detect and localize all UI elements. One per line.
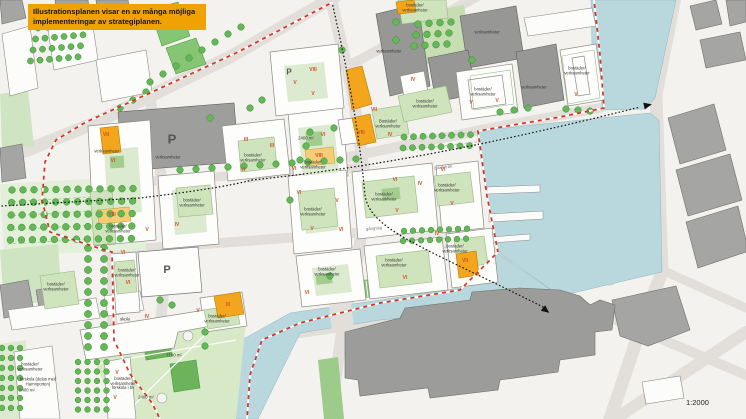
tree-icon — [8, 212, 15, 219]
tree-icon — [30, 211, 37, 218]
tree-icon — [439, 133, 445, 139]
tree-icon — [410, 228, 416, 234]
tree-icon — [17, 355, 23, 361]
tree-icon — [104, 397, 110, 403]
tree-icon — [186, 55, 193, 62]
tree-icon — [119, 185, 126, 192]
tree-icon — [96, 211, 103, 218]
tree-icon — [177, 167, 184, 174]
plan-note-callout: Illustrationsplanen visar en av många mö… — [28, 4, 206, 30]
tree-icon — [73, 223, 80, 230]
tree-icon — [56, 55, 62, 61]
tree-icon — [401, 228, 407, 234]
tree-icon — [241, 163, 248, 170]
tree-icon — [106, 235, 113, 242]
tree-icon — [400, 145, 406, 151]
tree-icon — [0, 395, 5, 401]
tree-icon — [75, 186, 82, 193]
tree-icon — [100, 266, 107, 273]
tree-icon — [106, 223, 113, 230]
tree-icon — [84, 255, 91, 262]
tree-icon — [94, 378, 100, 384]
tree-icon — [85, 369, 91, 375]
tree-icon — [17, 405, 23, 411]
tree-icon — [37, 57, 43, 63]
tree-icon — [75, 369, 81, 375]
tree-icon — [84, 223, 91, 230]
tree-icon — [193, 166, 200, 173]
tree-icon — [117, 223, 124, 230]
tree-icon — [8, 345, 14, 351]
tree-icon — [511, 107, 518, 114]
tree-icon — [433, 41, 440, 48]
tree-icon — [75, 54, 81, 60]
tree-icon — [95, 236, 102, 243]
tree-icon — [307, 129, 314, 136]
tree-icon — [31, 186, 38, 193]
tree-icon — [225, 31, 232, 38]
tree-icon — [100, 288, 107, 295]
tree-icon — [497, 109, 504, 116]
tree-icon — [100, 321, 107, 328]
tree-icon — [202, 329, 209, 336]
tree-icon — [447, 143, 453, 149]
tree-icon — [297, 157, 304, 164]
tree-icon — [410, 134, 416, 140]
tree-icon — [104, 369, 110, 375]
tree-icon — [160, 71, 167, 78]
tree-icon — [400, 238, 406, 244]
tree-icon — [104, 388, 110, 394]
tree-icon — [393, 37, 400, 44]
tree-icon — [353, 156, 360, 163]
tree-icon — [419, 227, 425, 233]
tree-icon — [94, 407, 100, 413]
tree-icon — [0, 385, 5, 391]
tree-icon — [448, 132, 454, 138]
tree-icon — [464, 226, 470, 232]
tree-icon — [327, 273, 334, 280]
tree-icon — [411, 43, 418, 50]
tree-icon — [84, 277, 91, 284]
tree-icon — [420, 133, 426, 139]
tree-icon — [95, 223, 102, 230]
tree-icon — [128, 223, 135, 230]
tree-icon — [94, 369, 100, 375]
tree-icon — [129, 210, 136, 217]
tree-icon — [108, 185, 115, 192]
tree-icon — [337, 157, 344, 164]
tree-icon — [331, 125, 338, 132]
tree-icon — [84, 288, 91, 295]
parking-building-south — [138, 247, 202, 297]
tree-icon — [0, 345, 5, 351]
tree-icon — [8, 355, 14, 361]
tree-icon — [29, 236, 36, 243]
tree-icon — [9, 187, 16, 194]
tree-icon — [429, 133, 435, 139]
tree-icon — [46, 56, 52, 62]
tree-icon — [8, 405, 14, 411]
tree-icon — [100, 255, 107, 262]
tree-icon — [64, 186, 71, 193]
orange-tower — [396, 0, 416, 14]
tree-icon — [17, 375, 23, 381]
tree-icon — [117, 235, 124, 242]
tree-icon — [209, 165, 216, 172]
tree-icon — [238, 24, 245, 31]
tree-icon — [0, 375, 5, 381]
tree-icon — [19, 211, 26, 218]
tree-icon — [52, 211, 59, 218]
tree-icon — [413, 32, 420, 39]
tree-icon — [65, 55, 71, 61]
tree-icon — [42, 35, 48, 41]
tree-icon — [207, 115, 214, 122]
tree-icon — [273, 161, 280, 168]
tree-icon — [86, 186, 93, 193]
tree-icon — [454, 236, 460, 242]
tree-icon — [469, 57, 476, 64]
tree-icon — [7, 224, 14, 231]
tree-icon — [415, 21, 422, 28]
tree-icon — [463, 236, 469, 242]
tree-icon — [157, 297, 164, 304]
tree-icon — [61, 33, 67, 39]
tree-icon — [75, 388, 81, 394]
tree-icon — [100, 343, 107, 350]
tree-icon — [100, 277, 107, 284]
tree-icon — [446, 226, 452, 232]
illustration-plan-map: VIIVIIIIVIIIIVIIIVVVIIVIIIIVIVVIVIIIVIVI… — [0, 0, 746, 419]
tree-icon — [51, 224, 58, 231]
tree-icon — [525, 105, 532, 112]
tree-icon — [40, 236, 47, 243]
tree-icon — [96, 198, 103, 205]
tree-icon — [17, 385, 23, 391]
tree-icon — [85, 198, 92, 205]
tree-icon — [94, 388, 100, 394]
tree-icon — [467, 132, 473, 138]
tree-icon — [393, 19, 400, 26]
tree-icon — [448, 19, 455, 26]
tree-icon — [458, 132, 464, 138]
tree-icon — [289, 160, 296, 167]
tree-icon — [303, 143, 310, 150]
tree-icon — [409, 145, 415, 151]
tree-icon — [49, 45, 55, 51]
plan-drawing — [0, 0, 746, 419]
tree-icon — [84, 332, 91, 339]
tree-icon — [75, 407, 81, 413]
tree-icon — [422, 42, 429, 49]
tree-icon — [18, 236, 25, 243]
tree-icon — [100, 299, 107, 306]
tree-icon — [100, 332, 107, 339]
tree-icon — [446, 30, 453, 37]
tree-icon — [77, 43, 83, 49]
tree-icon — [40, 224, 47, 231]
orange-tower — [214, 292, 244, 318]
tree-icon — [68, 44, 74, 50]
tree-icon — [259, 97, 266, 104]
tree-icon — [225, 164, 232, 171]
tree-icon — [75, 359, 81, 365]
tree-icon — [80, 32, 86, 38]
tree-icon — [202, 343, 209, 350]
tree-icon — [107, 210, 114, 217]
tree-icon — [0, 365, 5, 371]
tree-icon — [84, 321, 91, 328]
tree-icon — [0, 405, 5, 411]
tree-icon — [53, 186, 60, 193]
tree-icon — [8, 385, 14, 391]
tree-icon — [104, 378, 110, 384]
orange-tower — [100, 126, 121, 154]
tree-icon — [437, 19, 444, 26]
tree-icon — [62, 223, 69, 230]
tree-icon — [104, 407, 110, 413]
tree-icon — [51, 34, 57, 40]
tree-icon — [17, 345, 23, 351]
tree-icon — [85, 359, 91, 365]
tree-icon — [75, 378, 81, 384]
tree-icon — [426, 20, 433, 27]
tree-icon — [8, 375, 14, 381]
tree-icon — [84, 310, 91, 317]
tree-icon — [199, 47, 206, 54]
tree-icon — [85, 397, 91, 403]
tree-icon — [419, 144, 425, 150]
tree-icon — [100, 310, 107, 317]
tree-icon — [428, 144, 434, 150]
tree-icon — [32, 36, 38, 42]
tree-icon — [428, 227, 434, 233]
tree-icon — [74, 211, 81, 218]
tree-icon — [58, 44, 64, 50]
tree-icon — [85, 388, 91, 394]
tree-icon — [444, 41, 451, 48]
tree-icon — [20, 186, 27, 193]
tree-icon — [427, 237, 433, 243]
scale-label: 1:2000 — [686, 398, 709, 407]
tree-icon — [455, 226, 461, 232]
tree-icon — [321, 158, 328, 165]
tree-icon — [147, 79, 154, 86]
tree-icon — [8, 395, 14, 401]
tree-icon — [305, 159, 312, 166]
tree-icon — [8, 365, 14, 371]
tree-icon — [173, 63, 180, 70]
tree-icon — [85, 211, 92, 218]
tree-icon — [169, 302, 176, 309]
tree-icon — [51, 236, 58, 243]
tree-icon — [70, 33, 76, 39]
tree-icon — [257, 162, 264, 169]
tree-icon — [339, 47, 346, 54]
tree-icon — [17, 365, 23, 371]
tree-icon — [7, 237, 14, 244]
tree-icon — [104, 359, 110, 365]
tree-icon — [128, 235, 135, 242]
tree-icon — [17, 395, 23, 401]
tree-icon — [418, 237, 424, 243]
tree-icon — [212, 39, 219, 46]
tree-icon — [52, 199, 59, 206]
tree-icon — [84, 343, 91, 350]
tree-icon — [0, 355, 5, 361]
tree-icon — [85, 378, 91, 384]
tree-icon — [563, 106, 570, 113]
tree-icon — [94, 397, 100, 403]
tree-icon — [94, 359, 100, 365]
tree-icon — [247, 105, 254, 112]
tree-icon — [63, 211, 70, 218]
tree-icon — [84, 266, 91, 273]
tree-icon — [287, 197, 294, 204]
tree-icon — [436, 237, 442, 243]
tree-icon — [84, 299, 91, 306]
tree-icon — [18, 224, 25, 231]
tree-icon — [84, 236, 91, 243]
tree-icon — [438, 144, 444, 150]
plan-note-text: Illustrationsplanen visar en av många mö… — [33, 7, 195, 26]
tree-icon — [118, 210, 125, 217]
tree-icon — [445, 236, 451, 242]
tree-icon — [27, 58, 33, 64]
tree-icon — [130, 185, 137, 192]
tree-icon — [437, 227, 443, 233]
tree-icon — [75, 397, 81, 403]
tree-icon — [85, 407, 91, 413]
tree-icon — [29, 224, 36, 231]
tree-icon — [30, 47, 36, 53]
tree-icon — [97, 186, 104, 193]
tree-icon — [435, 30, 442, 37]
tree-icon — [401, 134, 407, 140]
tree-icon — [39, 46, 45, 52]
tree-icon — [424, 31, 431, 38]
